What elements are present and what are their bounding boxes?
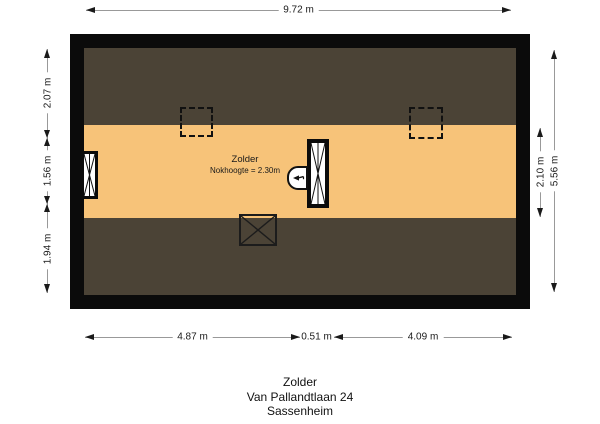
opening-cross-glyph bbox=[241, 216, 275, 244]
dimension-left-bottom-label: 1.94 m bbox=[42, 229, 53, 270]
window-cross-glyph bbox=[84, 154, 95, 196]
arrow-left-icon bbox=[334, 334, 343, 340]
chain-arrow-icon bbox=[44, 204, 50, 212]
floorplan-canvas: 9.72 m bbox=[0, 0, 600, 424]
skylight-right-icon bbox=[409, 107, 443, 139]
room-label: Zolder Nokhoogte = 2.30m bbox=[175, 154, 315, 176]
chain-arrow-icon bbox=[44, 138, 50, 146]
caption-floor: Zolder bbox=[150, 375, 450, 390]
dimension-right-inner-label: 2.10 m bbox=[535, 152, 546, 193]
arrow-left-icon bbox=[85, 334, 94, 340]
dimension-bottom-right-label: 4.09 m bbox=[403, 332, 444, 343]
room-ridge-height: Nokhoogte = 2.30m bbox=[175, 165, 315, 176]
skylight-left-icon bbox=[180, 107, 213, 137]
room-name: Zolder bbox=[175, 154, 315, 165]
chain-arrow-icon bbox=[44, 130, 50, 138]
roof-slope-top bbox=[84, 48, 516, 125]
arrow-up-icon bbox=[537, 128, 543, 137]
arrow-left-icon bbox=[86, 7, 95, 13]
arrow-down-icon bbox=[44, 284, 50, 293]
dimension-bottom-middle-label: 0.51 m bbox=[298, 332, 335, 343]
arrow-down-icon bbox=[537, 208, 543, 217]
caption-address: Van Pallandtlaan 24 bbox=[150, 390, 450, 405]
arrow-right-icon bbox=[502, 7, 511, 13]
dimension-right-outer-label: 5.56 m bbox=[549, 151, 560, 192]
dimension-bottom-left-label: 4.87 m bbox=[172, 332, 213, 343]
arrow-right-icon bbox=[503, 334, 512, 340]
arrow-up-icon bbox=[44, 49, 50, 58]
floor-opening-icon bbox=[239, 214, 277, 246]
dimension-top-label: 9.72 m bbox=[278, 5, 319, 16]
attic-floorplan: Zolder Nokhoogte = 2.30m bbox=[70, 34, 530, 309]
roof-slope-bottom bbox=[84, 218, 516, 293]
chain-arrow-icon bbox=[44, 196, 50, 204]
dimension-left-middle-label: 1.56 m bbox=[42, 151, 53, 192]
window-icon bbox=[81, 151, 98, 199]
caption-block: Zolder Van Pallandtlaan 24 Sassenheim bbox=[150, 375, 450, 419]
arrow-up-icon bbox=[551, 50, 557, 59]
dimension-left-top-label: 2.07 m bbox=[42, 73, 53, 114]
arrow-down-icon bbox=[551, 283, 557, 292]
caption-city: Sassenheim bbox=[150, 404, 450, 419]
